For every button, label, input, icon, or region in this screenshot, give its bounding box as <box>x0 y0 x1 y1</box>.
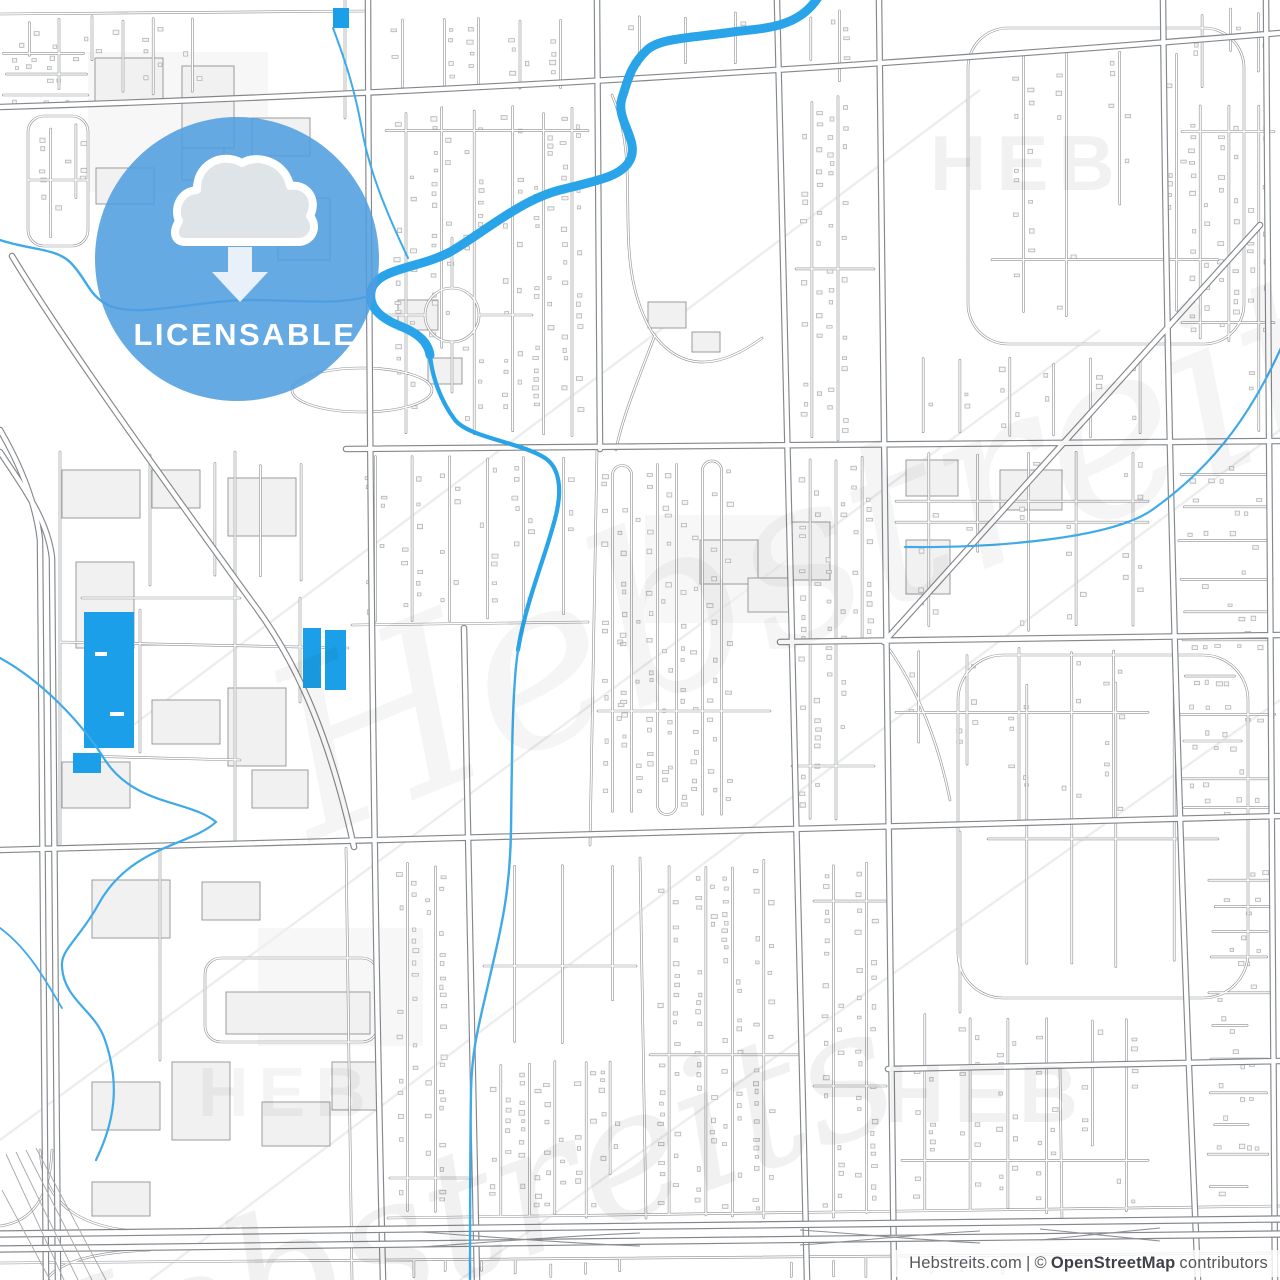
map-preview-page: HEB HEB HEB Hebstreits Hebstreits LICENS… <box>0 0 1280 1280</box>
attribution-divider: | <box>1026 1254 1031 1273</box>
attribution-source: Hebstreits.com <box>909 1254 1022 1273</box>
copyright-symbol: © <box>1034 1254 1046 1273</box>
attribution-bar: Hebstreits.com | © OpenStreetMap contrib… <box>895 1250 1280 1277</box>
osm-credit: OpenStreetMap <box>1051 1254 1176 1273</box>
licensable-badge: LICENSABLE <box>93 115 383 405</box>
attribution-suffix: contributors <box>1179 1254 1268 1273</box>
badge-label: LICENSABLE <box>133 317 356 352</box>
